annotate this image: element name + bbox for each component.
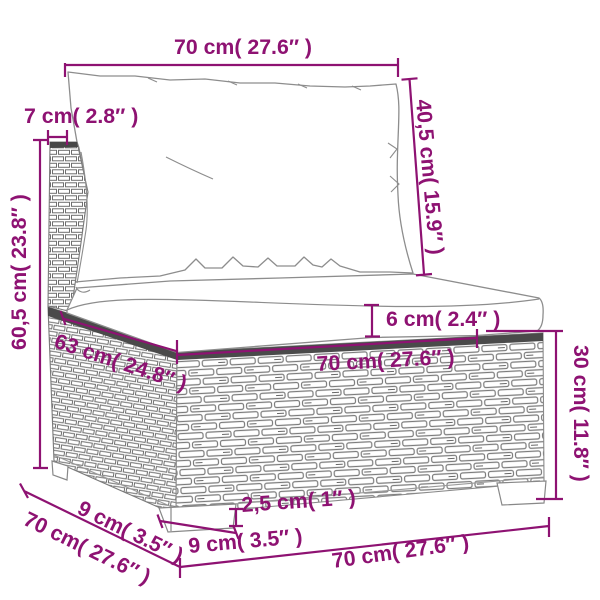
svg-text:6 cm( 2.4″ ): 6 cm( 2.4″ ) xyxy=(386,307,500,331)
svg-text:60,5 cm( 23.8″ ): 60,5 cm( 23.8″ ) xyxy=(7,194,31,350)
svg-text:7 cm( 2.8″ ): 7 cm( 2.8″ ) xyxy=(24,104,138,128)
svg-text:30 cm( 11.8″ ): 30 cm( 11.8″ ) xyxy=(569,345,593,482)
svg-text:70 cm( 27.6″ ): 70 cm( 27.6″ ) xyxy=(174,35,312,59)
